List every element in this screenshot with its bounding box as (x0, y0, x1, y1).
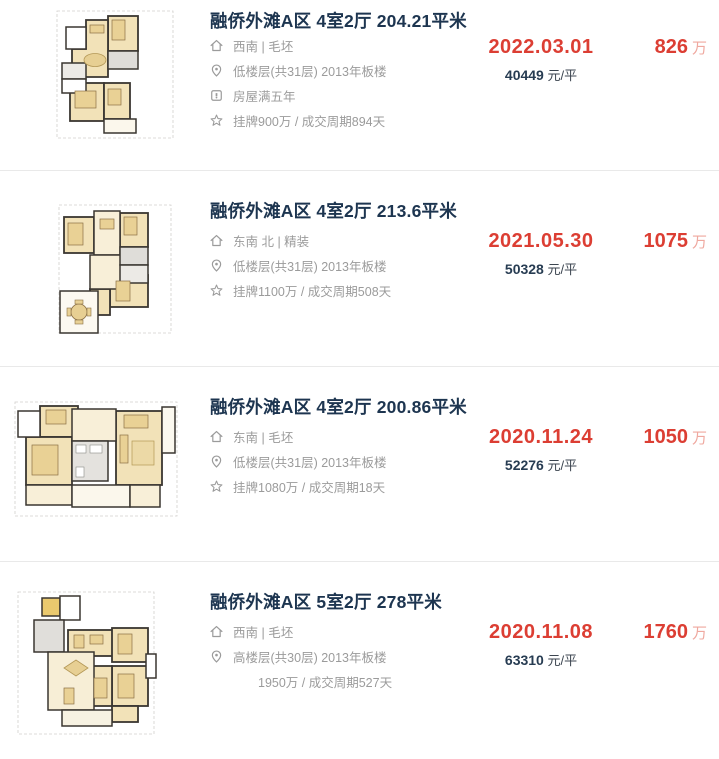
deal-date: 2020.11.08 (468, 621, 614, 644)
floor-building-text: 低楼层(共31层) 2013年板楼 (233, 256, 387, 275)
listing-details: 西南 | 毛坯 低楼层(共31层) 2013年板楼 房屋满五年 挂牌900万 /… (210, 33, 387, 133)
listing-title[interactable]: 融侨外滩A区 4室2厅 204.21平米 (210, 8, 467, 33)
listing-details: 东南 | 毛坯 低楼层(共31层) 2013年板楼 挂牌1080万 / 成交周期… (210, 424, 387, 499)
total-price-unit: 万 (692, 40, 707, 57)
listing-history-line: 1950万 / 成交周期527天 (210, 669, 392, 694)
floorplan-image[interactable] (54, 203, 178, 342)
orientation-decoration-line: 东南 北 | 精装 (210, 228, 391, 253)
unit-price-value: 52276 (505, 457, 544, 473)
deal-date: 2020.11.24 (468, 426, 614, 449)
unit-price-value: 40449 (505, 67, 544, 83)
listing-details: 东南 北 | 精装 低楼层(共31层) 2013年板楼 挂牌1100万 / 成交… (210, 228, 391, 303)
floor-building-text: 高楼层(共30层) 2013年板楼 (233, 647, 387, 666)
floorplan-drawing (54, 203, 178, 337)
deal-info: 2020.11.08 63310 元/平 (468, 621, 614, 669)
total-price: 1075万 (643, 230, 707, 253)
star-icon (210, 284, 223, 297)
home-icon (210, 234, 223, 247)
listing-title[interactable]: 融侨外滩A区 5室2厅 278平米 (210, 589, 442, 614)
unit-price: 50328 元/平 (468, 259, 614, 278)
listing-title[interactable]: 融侨外滩A区 4室2厅 200.86平米 (210, 394, 467, 419)
orientation-decoration-text: 西南 | 毛坯 (233, 622, 293, 641)
total-price: 1050万 (643, 426, 707, 449)
orientation-decoration-text: 东南 北 | 精装 (233, 231, 309, 250)
location-icon (210, 455, 223, 468)
listing-row[interactable]: 融侨外滩A区 5室2厅 278平米 西南 | 毛坯 高楼层(共30层) 2013… (0, 562, 719, 759)
deal-info: 2020.11.24 52276 元/平 (468, 426, 614, 474)
blank-icon-spacer (210, 675, 223, 688)
floorplan-image[interactable] (50, 5, 186, 150)
total-price-value: 1075 (643, 230, 688, 252)
deal-date: 2021.05.30 (468, 230, 614, 253)
home-icon (210, 625, 223, 638)
total-price-value: 1050 (643, 426, 688, 448)
deal-info: 2021.05.30 50328 元/平 (468, 230, 614, 278)
star-icon (210, 114, 223, 127)
orientation-decoration-text: 西南 | 毛坯 (233, 36, 293, 55)
floor-building-line: 高楼层(共30层) 2013年板楼 (210, 644, 392, 669)
listing-row[interactable]: 融侨外滩A区 4室2厅 204.21平米 西南 | 毛坯 低楼层(共31层) 2… (0, 0, 719, 171)
floor-building-line: 低楼层(共31层) 2013年板楼 (210, 449, 387, 474)
floor-building-text: 低楼层(共31层) 2013年板楼 (233, 452, 387, 471)
total-price-unit: 万 (692, 430, 707, 447)
total-price-unit: 万 (692, 625, 707, 642)
listing-history-text: 挂牌900万 / 成交周期894天 (233, 111, 385, 130)
total-price-value: 1760 (643, 621, 688, 643)
unit-price: 40449 元/平 (468, 65, 614, 84)
star-icon (210, 480, 223, 493)
deal-info: 2022.03.01 40449 元/平 (468, 36, 614, 84)
listing-history-line: 挂牌1100万 / 成交周期508天 (210, 278, 391, 303)
listing-title[interactable]: 融侨外滩A区 4室2厅 213.6平米 (210, 198, 457, 223)
total-price: 826万 (655, 36, 707, 59)
unit-price-suffix: 元/平 (547, 458, 577, 473)
location-icon (210, 64, 223, 77)
unit-price: 52276 元/平 (468, 455, 614, 474)
home-icon (210, 39, 223, 52)
listing-history-text: 挂牌1100万 / 成交周期508天 (233, 281, 391, 300)
orientation-decoration-line: 东南 | 毛坯 (210, 424, 387, 449)
location-icon (210, 650, 223, 663)
unit-price: 63310 元/平 (468, 650, 614, 669)
total-price-unit: 万 (692, 234, 707, 251)
tax-badge-icon (210, 89, 223, 102)
floorplan-drawing (12, 588, 162, 740)
floorplan-image[interactable] (12, 397, 182, 526)
location-icon (210, 259, 223, 272)
floor-building-line: 低楼层(共31层) 2013年板楼 (210, 253, 391, 278)
deal-date: 2022.03.01 (468, 36, 614, 59)
unit-price-value: 63310 (505, 652, 544, 668)
total-price: 1760万 (643, 621, 707, 644)
floorplan-drawing (50, 5, 186, 145)
listing-history-line: 挂牌1080万 / 成交周期18天 (210, 474, 387, 499)
listing-details: 西南 | 毛坯 高楼层(共30层) 2013年板楼 1950万 / 成交周期52… (210, 619, 392, 694)
orientation-decoration-line: 西南 | 毛坯 (210, 619, 392, 644)
tax-status-line: 房屋满五年 (210, 83, 387, 108)
listing-row[interactable]: 融侨外滩A区 4室2厅 200.86平米 东南 | 毛坯 低楼层(共31层) 2… (0, 367, 719, 562)
unit-price-suffix: 元/平 (547, 262, 577, 277)
unit-price-suffix: 元/平 (547, 68, 577, 83)
floor-building-text: 低楼层(共31层) 2013年板楼 (233, 61, 387, 80)
floorplan-image[interactable] (12, 588, 162, 745)
orientation-decoration-text: 东南 | 毛坯 (233, 427, 293, 446)
home-icon (210, 430, 223, 443)
orientation-decoration-line: 西南 | 毛坯 (210, 33, 387, 58)
listing-history-text: 1950万 / 成交周期527天 (233, 672, 392, 691)
listing-row[interactable]: 融侨外滩A区 4室2厅 213.6平米 东南 北 | 精装 低楼层(共31层) … (0, 171, 719, 367)
floorplan-drawing (12, 397, 182, 521)
unit-price-value: 50328 (505, 261, 544, 277)
listing-history-text: 挂牌1080万 / 成交周期18天 (233, 477, 385, 496)
total-price-value: 826 (655, 36, 688, 58)
floor-building-line: 低楼层(共31层) 2013年板楼 (210, 58, 387, 83)
listing-history-line: 挂牌900万 / 成交周期894天 (210, 108, 387, 133)
tax-status-text: 房屋满五年 (233, 86, 296, 105)
unit-price-suffix: 元/平 (547, 653, 577, 668)
